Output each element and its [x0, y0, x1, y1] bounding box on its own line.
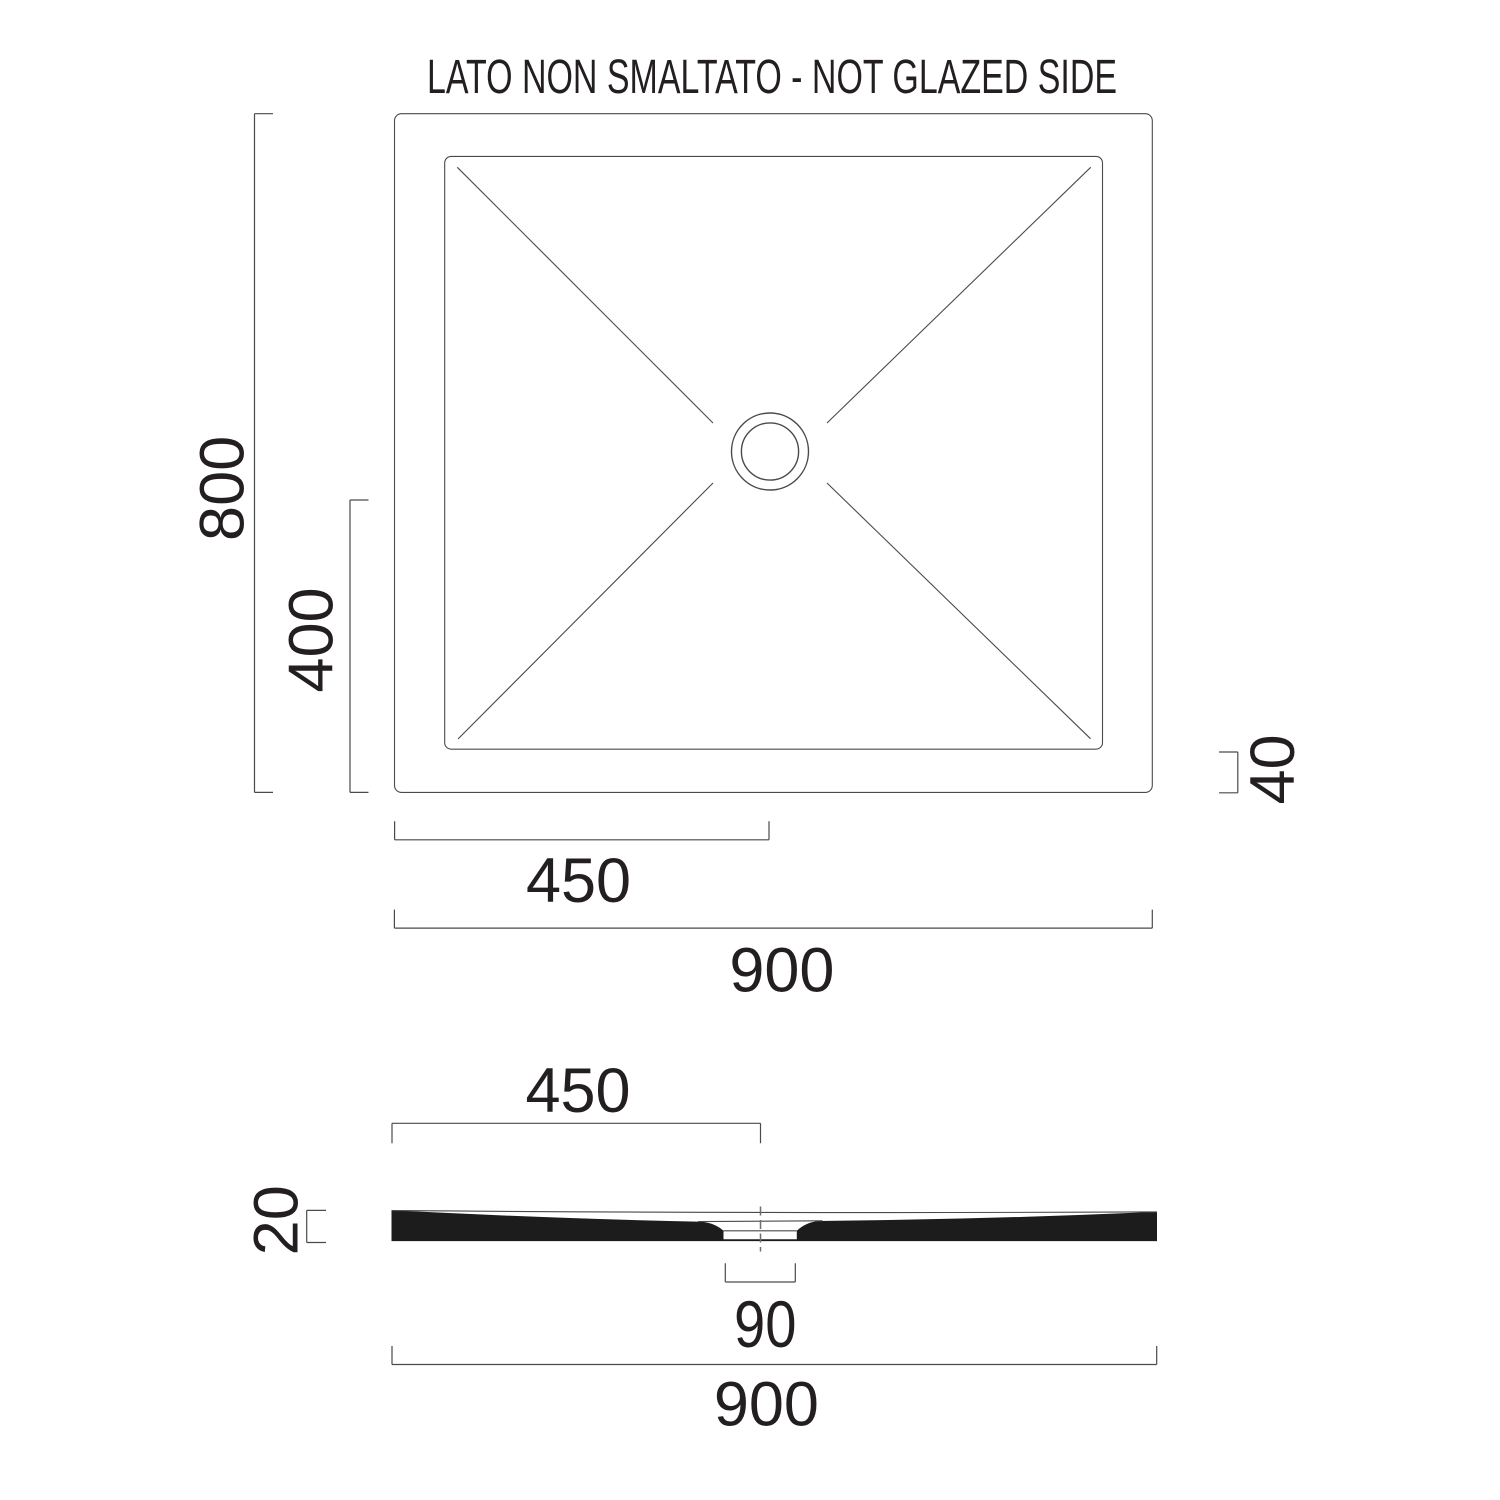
svg-text:900: 900: [729, 936, 834, 1006]
svg-text:20: 20: [241, 1185, 311, 1255]
svg-text:90: 90: [734, 1287, 797, 1361]
svg-text:800: 800: [187, 436, 257, 541]
svg-text:450: 450: [526, 846, 631, 916]
svg-text:40: 40: [1238, 734, 1308, 804]
svg-text:400: 400: [276, 587, 346, 692]
svg-text:450: 450: [525, 1056, 630, 1126]
svg-text:900: 900: [714, 1369, 819, 1439]
svg-text:LATO NON SMALTATO - NOT GLAZED: LATO NON SMALTATO - NOT GLAZED SIDE: [427, 50, 1117, 104]
